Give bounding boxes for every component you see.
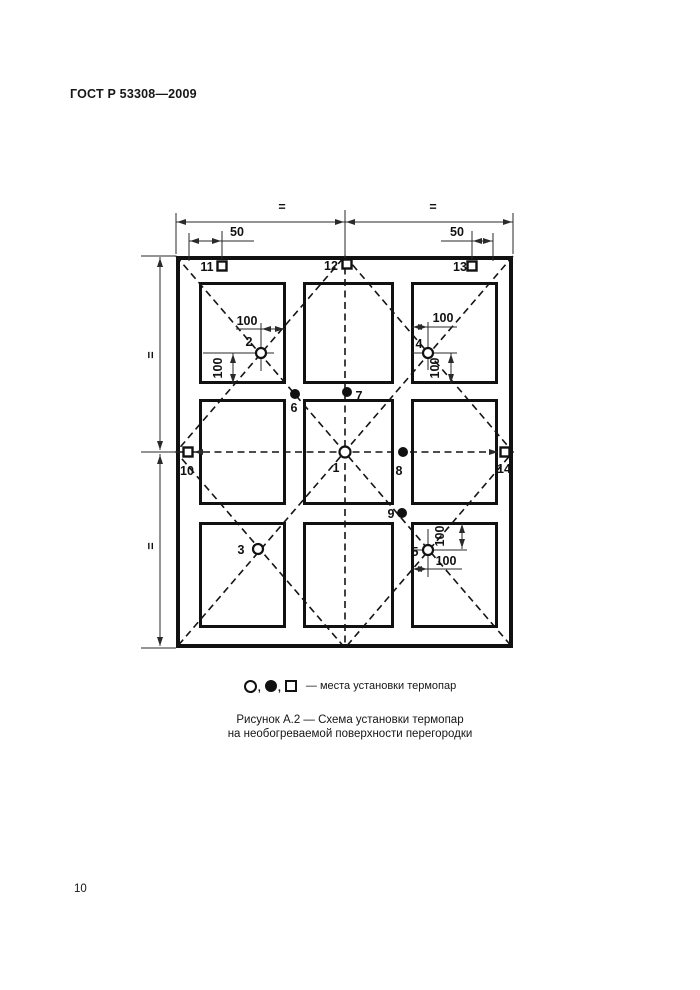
thermocouple-open-1 [340, 447, 351, 458]
thermocouple-square-11 [218, 262, 227, 271]
thermocouple-filled-8 [398, 447, 408, 457]
point-label-8: 8 [396, 464, 403, 478]
thermocouple-square-13 [468, 262, 477, 271]
point-3-group: 3 [238, 543, 263, 557]
legend-comma: , [278, 682, 281, 694]
dim-50-right: 50 [450, 225, 464, 239]
dim-100-p4-v: 100 [428, 358, 442, 379]
panel [413, 524, 497, 627]
point-label-10: 10 [180, 464, 194, 478]
caption-line-2: на необогреваемой поверхности перегородк… [0, 727, 700, 741]
point-label-14: 14 [497, 462, 511, 476]
thermocouple-filled-9 [397, 508, 407, 518]
dim-equal-top-right: = [429, 200, 436, 214]
thermocouple-open-5 [423, 545, 433, 555]
point-label-13: 13 [453, 260, 467, 274]
point-label-3: 3 [238, 543, 245, 557]
point-label-12: 12 [324, 259, 338, 273]
legend-comma: , [258, 682, 261, 694]
dim-100-p5-h: 100 [436, 554, 457, 568]
thermocouple-square-10 [184, 448, 193, 457]
point-label-5: 5 [412, 545, 419, 559]
panel [305, 524, 393, 627]
dim-100-p2-v: 100 [211, 358, 225, 379]
open-circle-icon [244, 680, 257, 693]
point-label-6: 6 [291, 401, 298, 415]
thermocouple-square-12 [343, 260, 352, 269]
panel [413, 284, 497, 383]
dim-equal-left-lower: = [143, 542, 157, 549]
dim-equal-left-upper: = [143, 351, 157, 358]
panel [305, 284, 393, 383]
point-label-1: 1 [333, 461, 340, 475]
panel [201, 524, 285, 627]
caption-line-1: Рисунок А.2 — Схема установки термопар [0, 713, 700, 727]
thermocouple-open-2 [256, 348, 266, 358]
point-label-7: 7 [356, 389, 363, 403]
thermocouple-filled-6 [290, 389, 300, 399]
thermocouple-open-3 [253, 544, 263, 554]
point-1-group: 1 [333, 447, 351, 476]
dim-100-p4-h: 100 [433, 311, 454, 325]
legend-text: — места установки термопар [306, 680, 456, 692]
point-label-4: 4 [416, 337, 423, 351]
dim-100-p2-h: 100 [237, 314, 258, 328]
filled-circle-icon [265, 680, 277, 692]
figure-diagram: = = 50 50 [0, 0, 700, 990]
point-5-group: 100 100 5 [412, 523, 467, 577]
point-label-2: 2 [246, 335, 253, 349]
point-label-11: 11 [200, 260, 213, 274]
dim-equal-top-left: = [278, 200, 285, 214]
square-icon [285, 680, 297, 692]
point-label-9: 9 [388, 507, 395, 521]
dimension-50-left: 50 [189, 225, 254, 261]
dim-50-left: 50 [230, 225, 244, 239]
dim-100-p5-v: 100 [433, 526, 447, 547]
dimension-left: = = [141, 256, 180, 648]
document-page: ГОСТ Р 53308—2009 [0, 0, 700, 990]
page-number: 10 [74, 883, 87, 895]
thermocouple-square-14 [501, 448, 510, 457]
thermocouple-filled-7 [342, 387, 352, 397]
figure-caption: Рисунок А.2 — Схема установки термопар н… [0, 713, 700, 741]
dimension-50-right: 50 [441, 225, 493, 261]
thermocouple-open-4 [423, 348, 433, 358]
figure-legend: , , — места установки термопар [0, 678, 700, 694]
